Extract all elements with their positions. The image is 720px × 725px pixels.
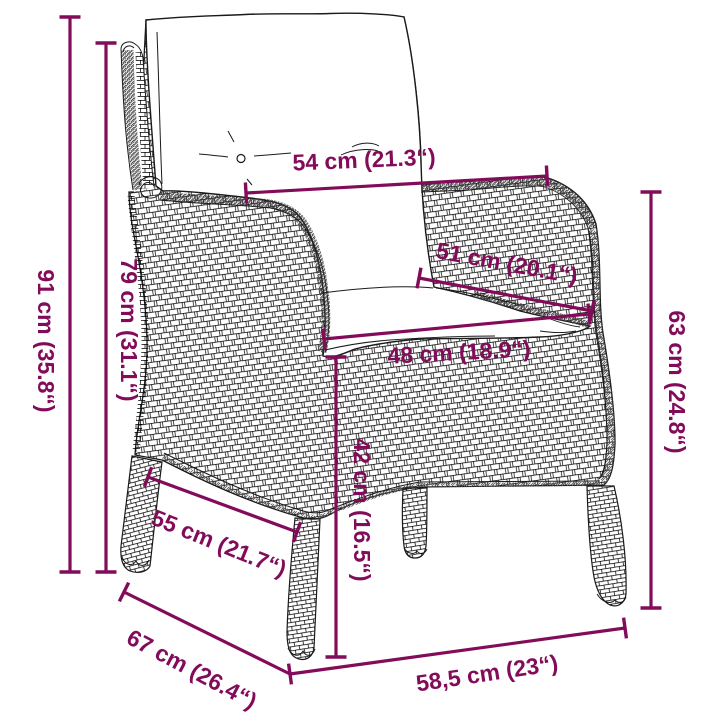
svg-text:55 cm (21.7“): 55 cm (21.7“) [148, 504, 291, 582]
svg-text:79 cm (31.1“): 79 cm (31.1“) [116, 258, 142, 401]
svg-text:67 cm (26.4“): 67 cm (26.4“) [123, 624, 262, 714]
svg-text:63 cm (24.8“): 63 cm (24.8“) [664, 310, 690, 453]
svg-text:58,5 cm (23“): 58,5 cm (23“) [414, 650, 559, 697]
svg-text:91 cm (35.8“): 91 cm (35.8“) [33, 269, 59, 412]
svg-text:42 cm (16.5“): 42 cm (16.5“) [349, 438, 375, 581]
